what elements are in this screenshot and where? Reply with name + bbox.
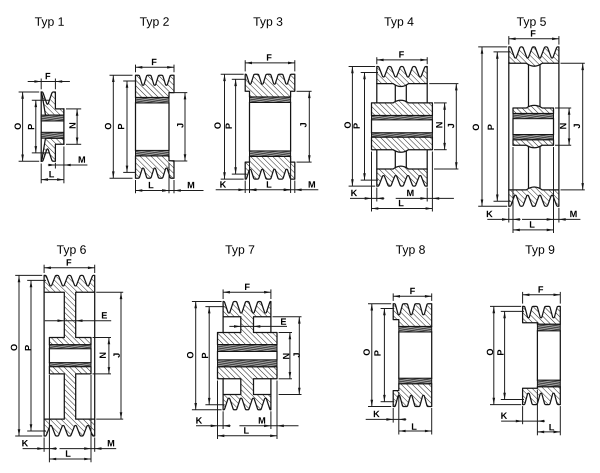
svg-text:Typ 9: Typ 9 <box>525 243 555 257</box>
svg-text:O: O <box>185 351 195 358</box>
svg-text:P: P <box>23 345 33 351</box>
svg-text:O: O <box>103 123 113 130</box>
svg-text:L: L <box>411 422 417 432</box>
svg-text:K: K <box>196 416 203 426</box>
svg-text:E: E <box>280 317 286 327</box>
svg-text:K: K <box>220 180 227 190</box>
svg-text:M: M <box>107 438 115 448</box>
svg-text:P: P <box>373 350 383 356</box>
svg-text:O: O <box>362 349 372 356</box>
svg-text:Typ 4: Typ 4 <box>384 15 414 29</box>
svg-text:O: O <box>13 123 23 130</box>
svg-text:J: J <box>446 123 456 128</box>
svg-text:K: K <box>486 209 493 219</box>
svg-text:P: P <box>352 123 362 129</box>
svg-text:L: L <box>148 180 154 190</box>
svg-text:L: L <box>529 220 535 230</box>
svg-text:L: L <box>65 449 71 459</box>
svg-text:Typ 1: Typ 1 <box>35 15 65 29</box>
svg-text:M: M <box>258 416 266 426</box>
svg-text:L: L <box>398 198 404 208</box>
svg-text:F: F <box>45 71 51 81</box>
svg-text:O: O <box>213 122 223 129</box>
svg-text:F: F <box>538 285 544 295</box>
svg-text:F: F <box>66 258 72 268</box>
svg-text:M: M <box>187 180 195 190</box>
svg-text:P: P <box>486 124 496 130</box>
svg-text:Typ 6: Typ 6 <box>57 243 87 257</box>
svg-text:K: K <box>501 411 508 421</box>
svg-text:M: M <box>570 209 578 219</box>
svg-text:F: F <box>266 53 272 63</box>
svg-text:Typ 7: Typ 7 <box>225 243 255 257</box>
svg-text:J: J <box>292 352 302 357</box>
svg-text:J: J <box>112 353 122 358</box>
svg-text:K: K <box>373 409 380 419</box>
svg-text:L: L <box>549 422 555 432</box>
svg-text:M: M <box>406 188 414 198</box>
svg-text:P: P <box>224 123 234 129</box>
svg-text:J: J <box>298 122 308 127</box>
svg-text:O: O <box>9 344 19 351</box>
svg-text:J: J <box>175 123 185 128</box>
svg-text:N: N <box>558 122 568 129</box>
svg-text:K: K <box>22 438 29 448</box>
svg-text:N: N <box>98 352 108 359</box>
svg-text:E: E <box>101 310 107 320</box>
svg-text:P: P <box>116 123 126 129</box>
svg-text:N: N <box>68 122 78 129</box>
svg-text:F: F <box>410 286 416 296</box>
svg-text:O: O <box>485 348 495 355</box>
svg-text:P: P <box>200 352 210 358</box>
svg-text:F: F <box>399 50 405 60</box>
svg-text:N: N <box>281 353 291 360</box>
svg-text:P: P <box>496 349 506 355</box>
svg-text:P: P <box>26 124 36 130</box>
svg-text:J: J <box>572 123 582 128</box>
svg-text:O: O <box>471 124 481 131</box>
svg-text:N: N <box>434 121 444 128</box>
svg-text:Typ 5: Typ 5 <box>517 15 547 29</box>
svg-text:F: F <box>244 282 250 292</box>
svg-text:Typ 8: Typ 8 <box>396 243 426 257</box>
svg-text:Typ 2: Typ 2 <box>140 15 170 29</box>
svg-text:L: L <box>266 180 272 190</box>
svg-text:K: K <box>351 188 358 198</box>
svg-text:F: F <box>530 29 536 39</box>
svg-text:M: M <box>78 155 86 165</box>
svg-text:L: L <box>243 426 249 436</box>
svg-text:Typ 3: Typ 3 <box>253 15 283 29</box>
svg-text:L: L <box>49 169 55 179</box>
svg-text:F: F <box>151 57 157 67</box>
svg-text:M: M <box>308 180 316 190</box>
